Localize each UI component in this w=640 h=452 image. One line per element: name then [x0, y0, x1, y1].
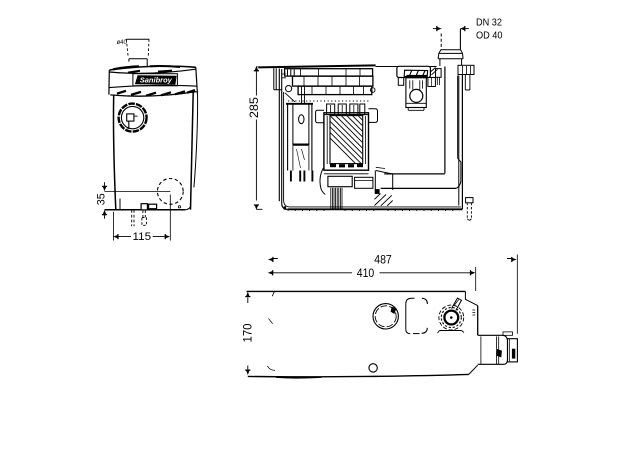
svg-text:410: 410	[357, 268, 375, 280]
svg-text:ø40: ø40	[117, 40, 128, 46]
svg-text:Sanibroy: Sanibroy	[140, 76, 173, 85]
svg-text:DN 32: DN 32	[476, 17, 502, 29]
svg-text:285: 285	[249, 97, 261, 118]
svg-text:170: 170	[242, 324, 254, 343]
svg-text:487: 487	[374, 254, 392, 266]
svg-text:OD 40: OD 40	[476, 30, 503, 42]
svg-text:35: 35	[96, 193, 108, 205]
svg-text:115: 115	[133, 231, 152, 243]
